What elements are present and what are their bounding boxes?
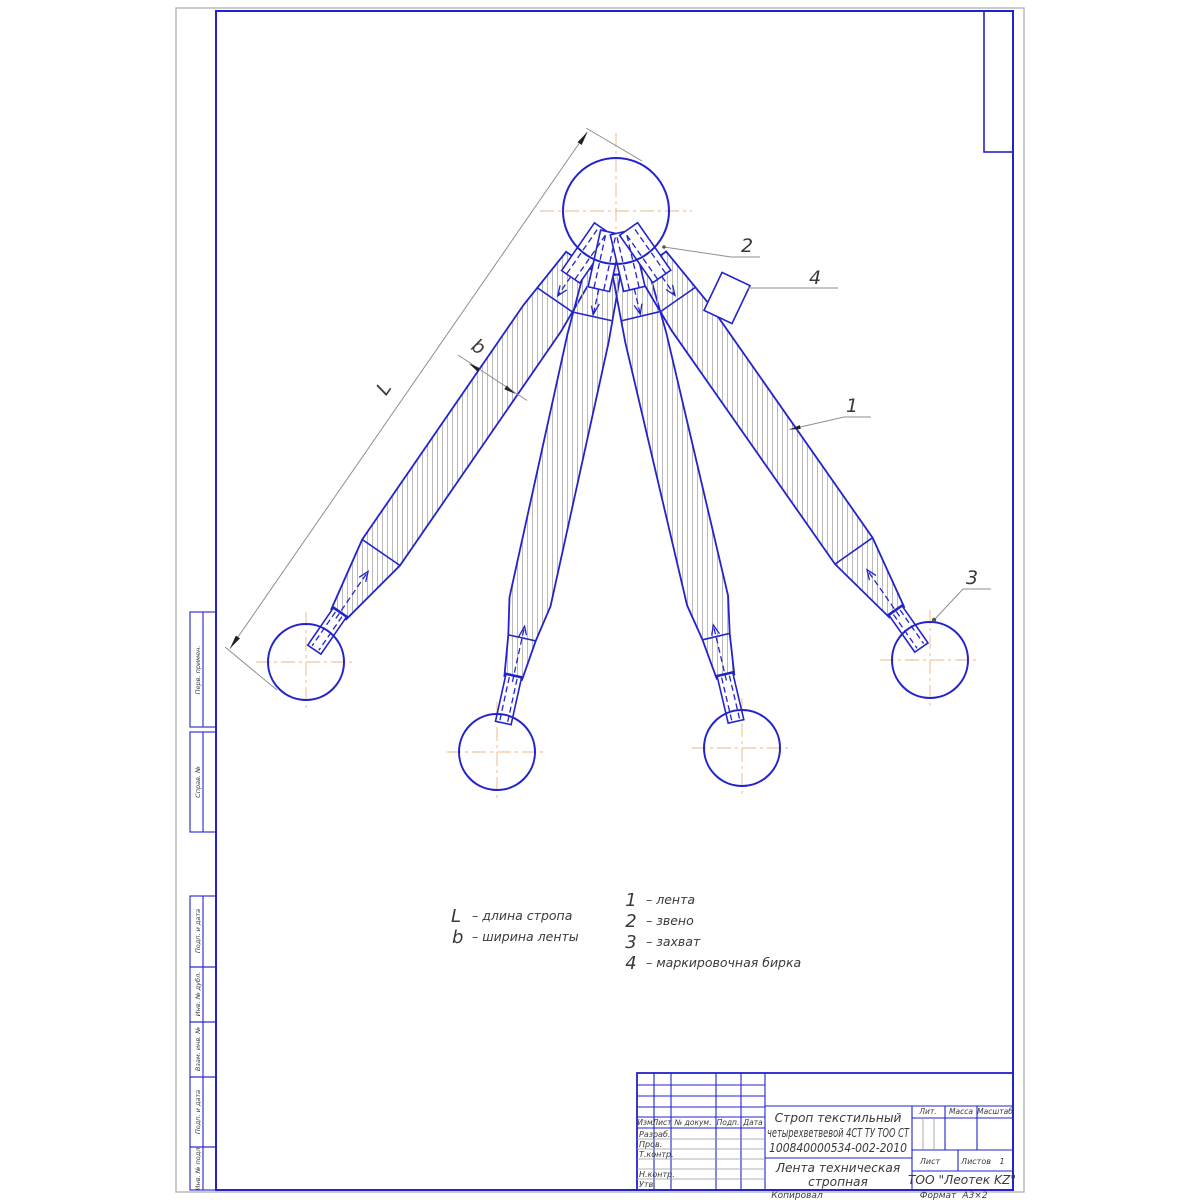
tb-designation-3: 100840000534-002-2010 — [769, 1141, 907, 1155]
tb-doc-name-2: стропная — [808, 1175, 868, 1189]
tb-role-ncontrol: Н.контр. — [639, 1170, 675, 1179]
legend-item-1-num: 1 — [625, 890, 636, 911]
footer-format-value: А3×2 — [961, 1191, 987, 1200]
legend-item-3-desc: – захват — [646, 934, 701, 949]
stamp-sprav-no: Справ. № — [194, 766, 202, 798]
stamp-perv-primen: Перв. примен. — [194, 646, 202, 695]
stamp-inv-dubl: Инв. № дубл. — [194, 972, 202, 1016]
tb-designation-2: четырехветвевой 4СТ ТУ ТОО СТ — [767, 1126, 910, 1140]
tb-role-approved: Утв. — [639, 1180, 656, 1189]
legend-L-symbol: L — [451, 906, 461, 927]
callout-4-label: 4 — [809, 267, 821, 289]
callout-3-label: 3 — [966, 567, 978, 589]
tb-sheets-label: Листов — [960, 1157, 991, 1166]
legend-item-3-num: 3 — [625, 932, 636, 953]
legend-item-2-desc: – звено — [646, 913, 694, 928]
legend-item-1-desc: – лента — [646, 892, 695, 907]
stamp-inv-podl: Инв. № подл. — [194, 1146, 202, 1191]
tb-scale-label: Масштаб — [977, 1107, 1013, 1116]
tb-designation-1: Строп текстильный — [775, 1111, 902, 1125]
drawing-sheet: Перв. примен. Справ. № Подп. и дата Инв.… — [0, 0, 1200, 1200]
legend-L-desc: – длина стропа — [472, 908, 572, 923]
tb-doc-name-1: Лента техническая — [775, 1161, 900, 1175]
legend-b-desc: – ширина ленты — [472, 929, 579, 944]
tb-header-izm: Изм — [637, 1118, 653, 1127]
legend-b-symbol: b — [452, 927, 463, 948]
tb-company: ТОО "Леотек KZ" — [908, 1173, 1016, 1187]
footer-copied: Копировал — [771, 1191, 823, 1200]
callout-1-label: 1 — [846, 395, 858, 417]
tb-sheets-value: 1 — [999, 1157, 1004, 1166]
tb-role-developed: Разраб. — [639, 1130, 670, 1139]
tb-role-checked: Пров. — [639, 1140, 662, 1149]
legend-item-2-num: 2 — [625, 911, 636, 932]
tb-mass-label: Масса — [949, 1107, 973, 1116]
tb-header-list: Лист — [651, 1118, 672, 1127]
tb-header-sign: Подп. — [717, 1118, 740, 1127]
tb-lit-label: Лит. — [918, 1107, 936, 1116]
legend-item-4-num: 4 — [625, 953, 636, 974]
legend-item-4-desc: – маркировочная бирка — [646, 955, 801, 970]
stamp-vzam-inv: Взам. инв. № — [194, 1027, 202, 1071]
tb-header-date: Дата — [742, 1118, 763, 1127]
stamp-podp-data-2: Подп. и дата — [194, 1090, 202, 1134]
tb-header-doc: № докум. — [674, 1118, 712, 1127]
footer-format-label: Формат — [920, 1191, 957, 1200]
technical-drawing: Перв. примен. Справ. № Подп. и дата Инв.… — [0, 0, 1200, 1200]
callout-2-label: 2 — [741, 235, 753, 257]
tb-sheet-label: Лист — [919, 1157, 941, 1166]
tb-role-tcontrol: Т.контр. — [639, 1150, 674, 1159]
stamp-podp-data-1: Подп. и дата — [194, 909, 202, 953]
